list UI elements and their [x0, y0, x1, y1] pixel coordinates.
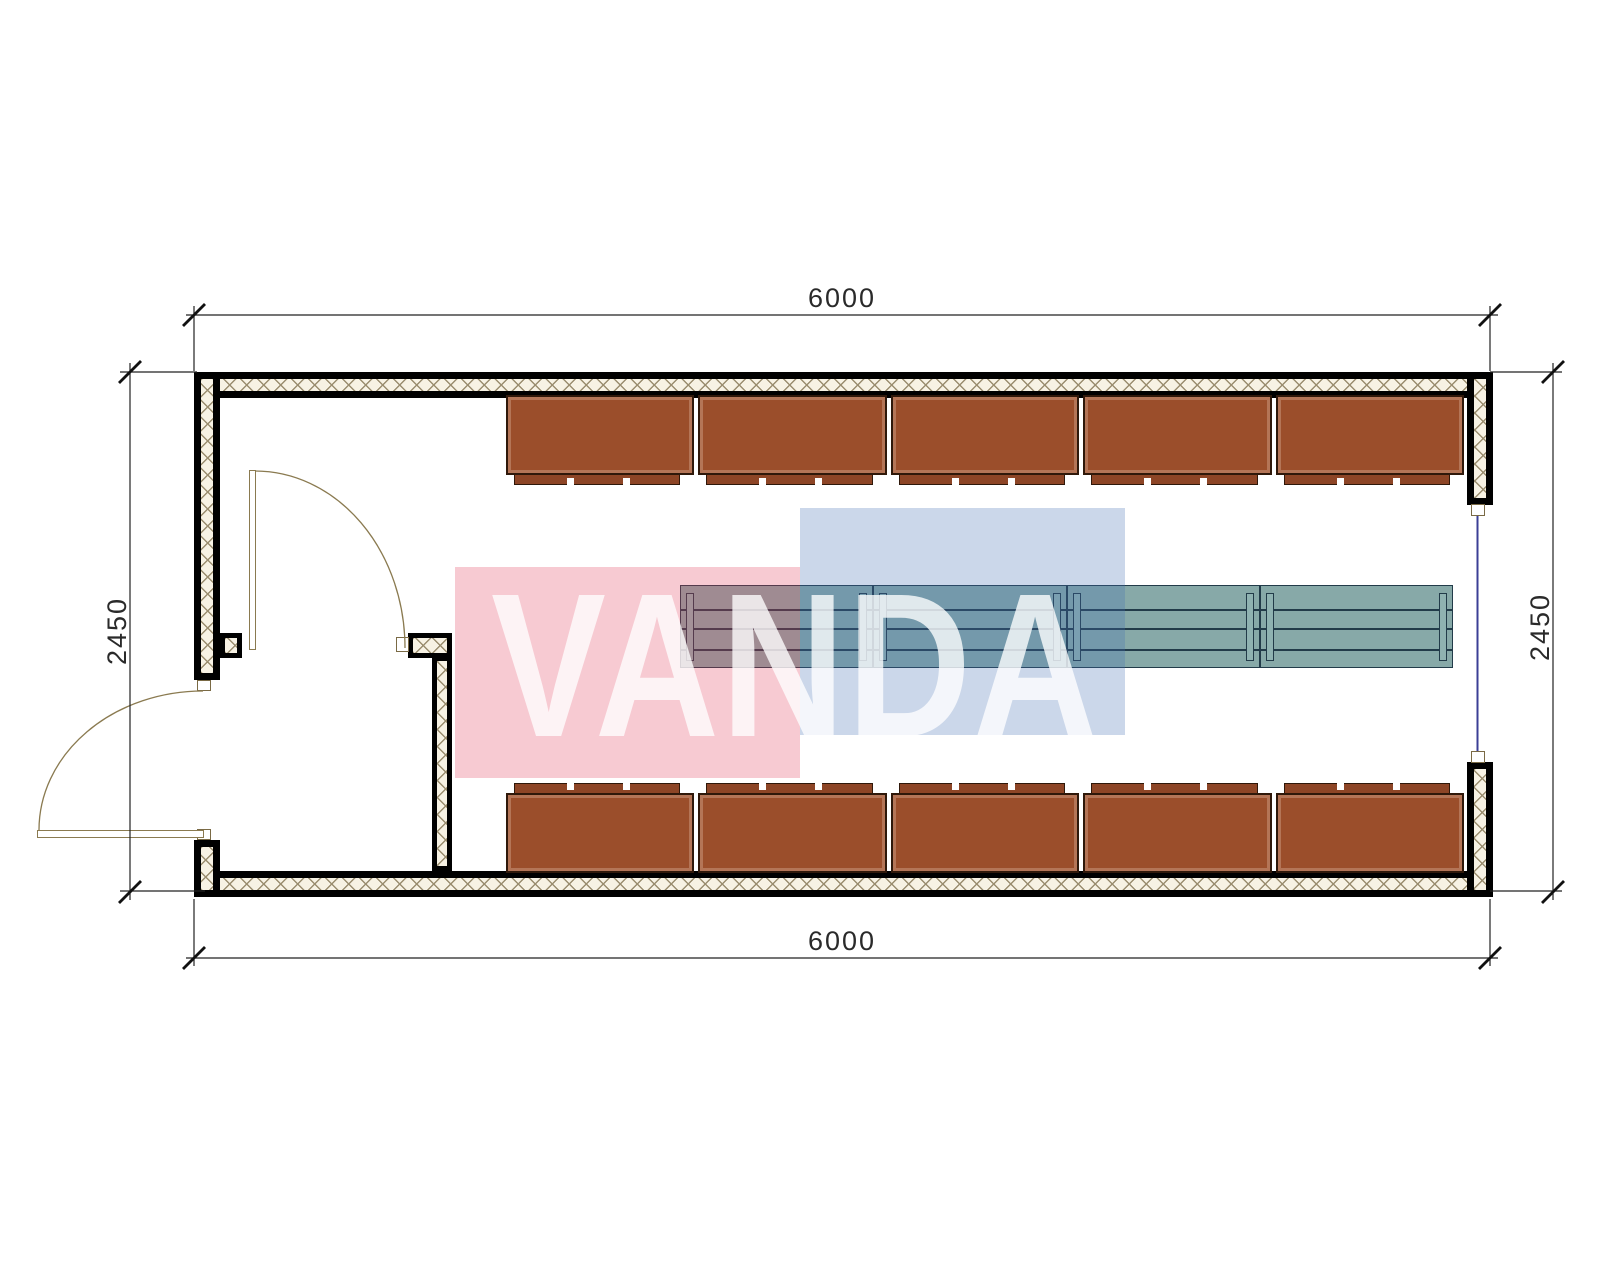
cabinet-strip-notch [759, 783, 766, 790]
work-table-group [680, 585, 1453, 668]
wall-bottom [194, 871, 1493, 897]
cabinet-unit-top-2 [698, 395, 886, 485]
wall-left-upper [194, 372, 220, 680]
cabinet-body [698, 395, 886, 475]
work-table-unit-4 [1260, 585, 1453, 668]
cabinet-strip-notch [952, 478, 959, 485]
cabinet-unit-bottom-4 [1083, 783, 1271, 873]
cabinet-front-strip [1091, 783, 1257, 794]
floor-plan: 6000 6000 2450 2450 VANDA [0, 0, 1600, 1280]
cabinet-front-strip [1284, 783, 1450, 794]
furniture-layer [0, 0, 1600, 1280]
cabinet-strip-notch [623, 478, 630, 485]
cabinet-strip-notch [1200, 478, 1207, 485]
dimension-ticks [119, 304, 1564, 969]
cabinet-strip-notch [1393, 478, 1400, 485]
interior-door-swing-arc [255, 471, 405, 648]
cabinet-strip-notch [1144, 478, 1151, 485]
work-table-leg [1266, 593, 1274, 661]
cabinet-body [506, 395, 694, 475]
work-table-leg [859, 593, 867, 661]
watermark-red-square [455, 567, 800, 778]
dim-top-label: 6000 [808, 283, 876, 313]
work-table-shelf-line [680, 628, 1453, 630]
wall-partition [432, 656, 452, 871]
cabinet-unit-bottom-3 [891, 783, 1079, 873]
cabinet-front-strip [1284, 474, 1450, 485]
cabinet-body [1276, 395, 1464, 475]
exterior-door-leaf [37, 830, 204, 838]
work-table-unit-3 [1067, 585, 1260, 668]
cabinet-front-strip [899, 783, 1065, 794]
cabinet-front-strip [706, 474, 872, 485]
dim-left-label: 2450 [102, 597, 132, 665]
cabinet-body [1083, 793, 1271, 873]
cabinet-unit-top-1 [506, 395, 694, 485]
cabinet-front-strip [1091, 474, 1257, 485]
work-table-leg [1053, 593, 1061, 661]
walls-layer [0, 0, 1600, 1280]
door-jamb-left-lower [197, 829, 211, 840]
wall-partition-stub [408, 633, 452, 658]
cabinet-strip-notch [1008, 478, 1015, 485]
cabinet-strip-notch [1337, 478, 1344, 485]
cabinet-front-strip [706, 783, 872, 794]
cabinet-body [1083, 395, 1271, 475]
exterior-door-swing-arc [39, 691, 203, 830]
work-table-leg [1073, 593, 1081, 661]
cabinet-strip-notch [815, 478, 822, 485]
cabinet-body [891, 793, 1079, 873]
work-table-leg [1439, 593, 1447, 661]
cabinet-unit-top-4 [1083, 395, 1271, 485]
cabinet-strip-notch [623, 783, 630, 790]
cabinet-strip-notch [1200, 783, 1207, 790]
linework-layer: 6000 6000 2450 2450 [0, 0, 1600, 1280]
dim-right-label: 2450 [1525, 593, 1555, 661]
cabinet-front-strip [899, 474, 1065, 485]
work-table-unit-2 [873, 585, 1066, 668]
cabinet-body [891, 395, 1079, 475]
cabinet-strip-notch [1393, 783, 1400, 790]
work-table-leg [1246, 593, 1254, 661]
cabinet-strip-notch [1008, 783, 1015, 790]
work-table-leg [879, 593, 887, 661]
cabinet-unit-bottom-5 [1276, 783, 1464, 873]
wall-top [194, 372, 1493, 398]
dimension-lines [120, 306, 1562, 966]
cabinet-body [698, 793, 886, 873]
cabinet-strip-notch [1144, 783, 1151, 790]
window-jamb-bottom [1471, 751, 1485, 763]
cabinet-strip-notch [815, 783, 822, 790]
wall-door-stub-left [220, 633, 242, 658]
watermark-blue-square [800, 508, 1125, 735]
work-table-unit-1 [680, 585, 873, 668]
cabinet-unit-top-5 [1276, 395, 1464, 485]
cabinet-strip-notch [567, 478, 574, 485]
wall-right-upper [1467, 372, 1493, 505]
work-table-shelf-line [680, 649, 1453, 651]
door-jamb-left-upper [197, 680, 211, 691]
watermark-layer: VANDA [0, 0, 1600, 1280]
wall-left-lower [194, 840, 220, 897]
interior-door-leaf [249, 470, 256, 650]
cabinet-strip-notch [567, 783, 574, 790]
window-jamb-top [1471, 504, 1485, 516]
cabinet-strip-notch [1337, 783, 1344, 790]
cabinet-front-strip [514, 783, 680, 794]
cabinet-body [1276, 793, 1464, 873]
cabinet-strip-notch [759, 478, 766, 485]
wall-right-lower [1467, 762, 1493, 897]
cabinet-unit-bottom-1 [506, 783, 694, 873]
door-jamb-partition [396, 637, 409, 652]
work-table-leg [686, 593, 694, 661]
watermark-text: VANDA [505, 558, 1085, 773]
cabinet-unit-bottom-2 [698, 783, 886, 873]
cabinet-body [506, 793, 694, 873]
work-table-shelf-line [680, 609, 1453, 611]
dim-bottom-label: 6000 [808, 926, 876, 956]
cabinet-front-strip [514, 474, 680, 485]
cabinet-strip-notch [952, 783, 959, 790]
cabinet-unit-top-3 [891, 395, 1079, 485]
